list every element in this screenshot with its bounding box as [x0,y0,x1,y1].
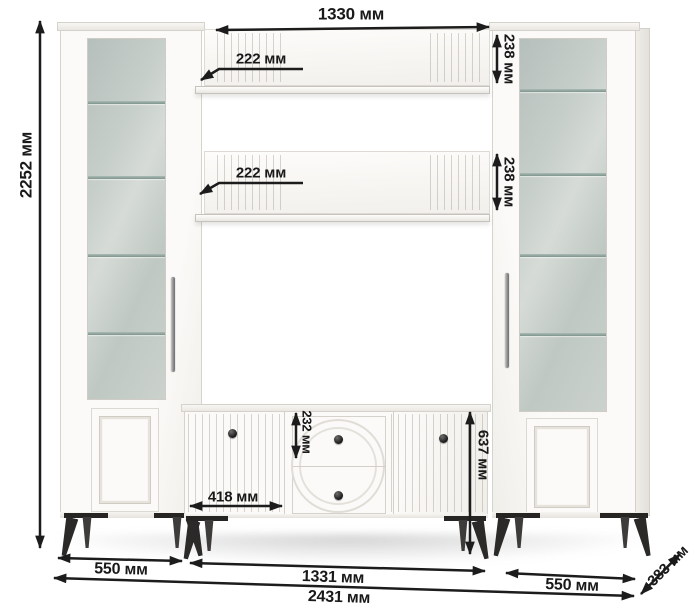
glass-shelf-line [520,89,606,92]
glass-shelf-line [88,332,165,335]
tv-door-right [391,414,483,512]
dim-label-left-cabinet-width: 550 мм [94,561,148,578]
dim-label-shelf-depth-top: 222 мм [236,52,286,67]
leg [458,520,468,551]
dim-label-shelf-height-top: 238 мм [502,34,517,84]
door-handle [171,277,175,372]
shelf-board [195,214,490,222]
dim-label-drawer-height: 232 мм [301,410,314,453]
left-display-cabinet [60,22,202,518]
cabinet-top [489,22,640,31]
shelf-fascia [204,151,490,214]
door-knob-left [228,429,237,438]
shelf-board [195,86,490,94]
leg [620,517,630,548]
glass-door [87,38,166,400]
glass-shelf-line [88,254,165,257]
cabinet-side-panel [635,28,650,516]
wall-shelf-middle [204,151,490,223]
fluting-right [430,155,486,210]
furniture-wall-unit-diagram: 1330 мм 2252 мм 238 мм 238 мм 222 мм 222… [0,0,700,607]
glass-shelf-line [520,254,606,257]
tv-stand-legs [186,516,228,562]
door-panel-frame [100,417,150,503]
glass-shelf-line [520,333,606,336]
cabinet-legs [496,513,540,559]
dim-label-shelf-length: 1330 мм [318,6,384,23]
dim-label-tvstand-height: 637 мм [476,430,491,480]
leg [514,517,524,548]
dim-label-tvstand-width: 1331 мм [302,569,365,587]
fluting-left [217,155,285,210]
tv-divider [393,412,394,515]
drawer-knob-bottom [334,491,343,500]
glass-shelf-line [520,173,606,176]
glass-door [519,38,607,412]
door-handle [505,273,509,368]
dim-label-right-cabinet-width: 550 мм [545,577,599,595]
lower-door-panel [526,418,598,516]
tv-stand-base-edge [184,514,488,518]
fluting-right [430,33,486,82]
dim-label-shelf-depth-middle: 222 мм [236,166,286,181]
dim-label-shelf-height-middle: 238 мм [502,157,517,207]
lower-door-panel [91,408,159,512]
door-knob-right [439,434,448,443]
dim-label-total-height: 2252 мм [18,132,35,198]
glass-shelf-line [88,101,165,104]
leg [204,520,214,551]
drawer-knob-top [334,435,343,444]
leg [172,517,182,548]
tv-divider [284,412,285,515]
door-panel-frame [535,427,589,507]
drawer-divider [293,466,385,467]
leg [82,517,92,548]
right-display-cabinet [492,22,650,518]
cabinet-legs [600,513,648,559]
dim-label-total-width: 2431 мм [308,589,371,607]
cabinet-legs [64,513,108,559]
glass-shelf-line [88,176,165,179]
tv-stand-legs [444,516,486,562]
tv-stand-top [181,404,491,412]
cabinet-top [57,22,205,31]
dim-label-door-width: 418 мм [208,490,258,505]
